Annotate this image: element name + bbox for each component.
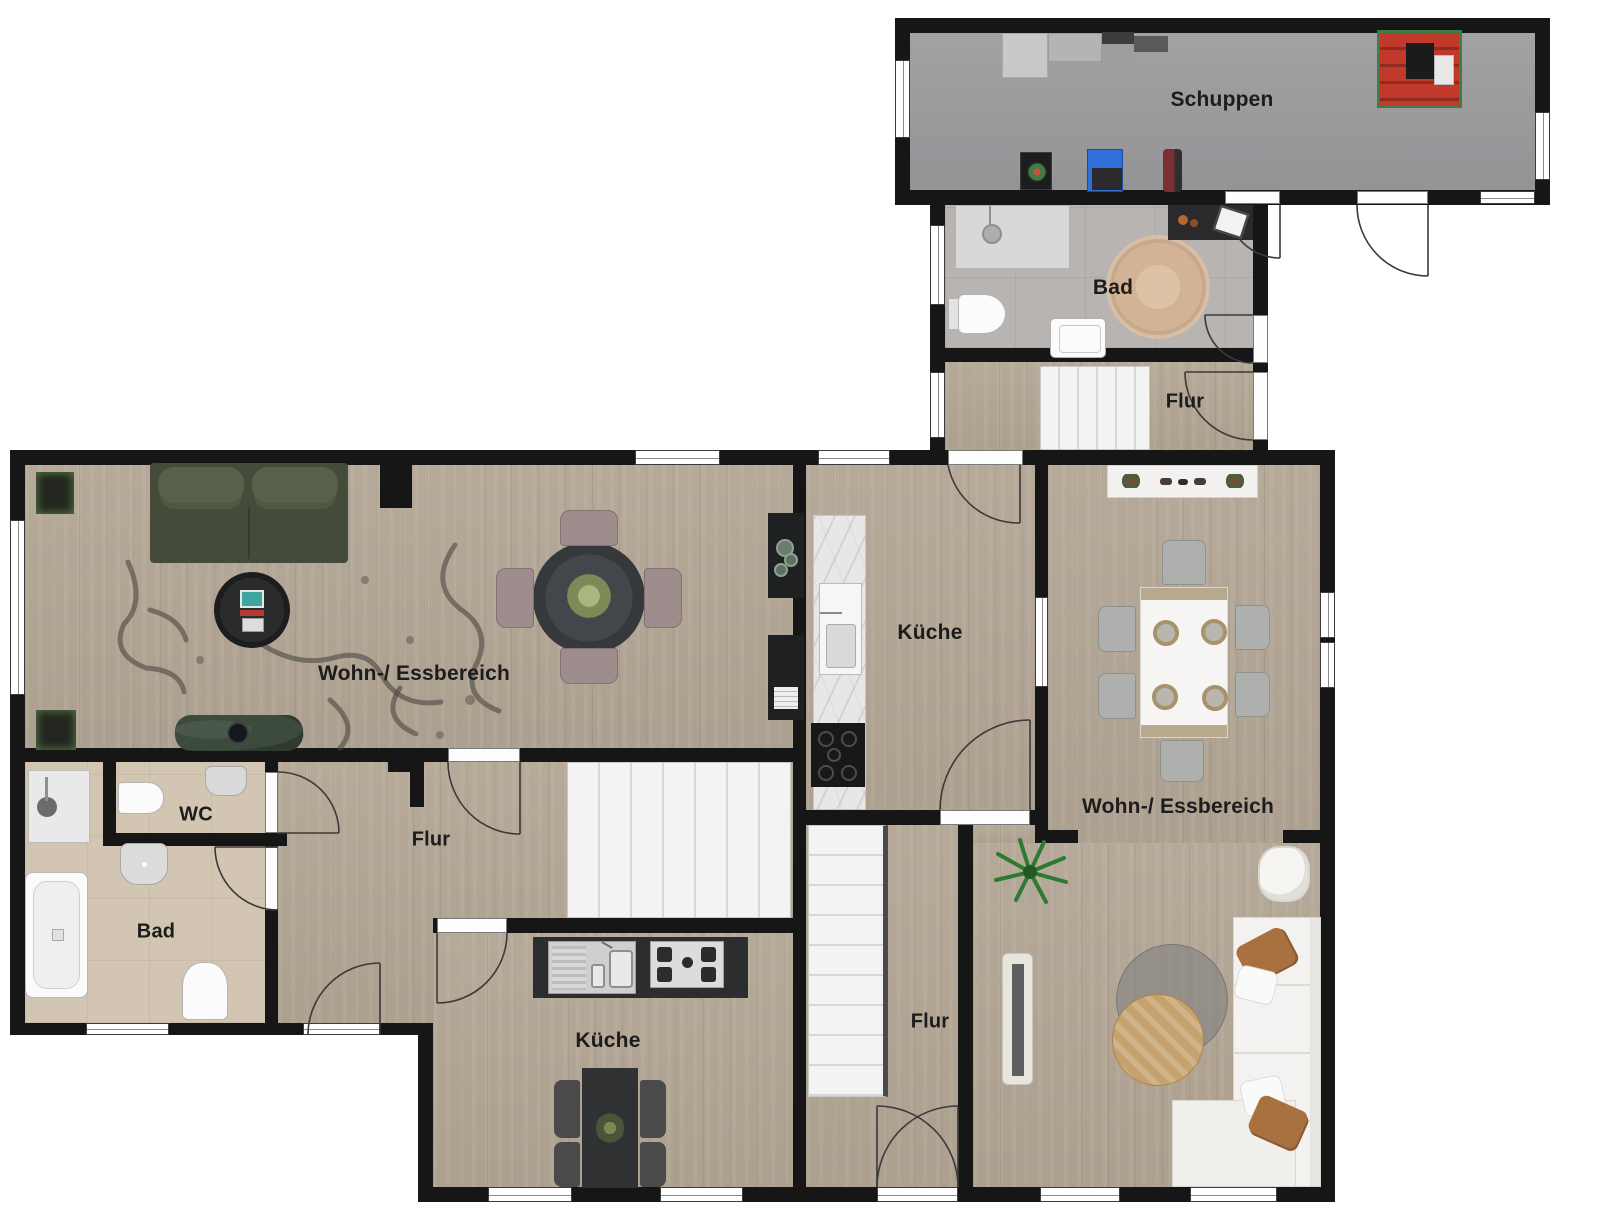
kitchen-chair-3 (640, 1080, 666, 1138)
storage-shelf-red (1377, 30, 1462, 108)
kueche-lower-wall-left (418, 1035, 433, 1202)
magazine-red (240, 610, 264, 616)
shower-arm (989, 206, 991, 226)
wohn-right-stub-right (1283, 830, 1320, 843)
window-bad-upper (930, 225, 945, 305)
workbench-shelf (1134, 36, 1168, 52)
chimney-mid (388, 748, 424, 772)
wall-art-1 (36, 472, 74, 514)
desk-accessory (1178, 215, 1188, 225)
wohn-right-stub-left (1048, 830, 1078, 843)
pouf-white (1258, 846, 1310, 902)
kitchen-sink (819, 583, 862, 675)
dining-chair-left (496, 568, 534, 628)
kitchen-chair-4 (640, 1142, 666, 1187)
room-label-bad-lower: Bad (137, 921, 175, 944)
door-gap-kueche-bottom (940, 810, 1030, 825)
window-living-left (10, 520, 25, 695)
window-kueche-top (818, 450, 890, 465)
chimney-mid-stub (410, 772, 424, 807)
window-schuppen-bottom (1480, 191, 1535, 204)
sink-unit-steel (548, 941, 636, 994)
cart-drawer (1092, 168, 1122, 190)
cabinet-plates (768, 513, 804, 598)
door-gap-flur-kueche (948, 450, 1023, 465)
hob-burner-3 (657, 967, 672, 982)
kitchen-chair-2 (554, 1142, 580, 1187)
burner-2 (841, 731, 857, 747)
coffee-table (214, 572, 290, 648)
magazine-white (242, 618, 264, 632)
room-label-flur-left: Flur (412, 829, 451, 852)
place-setting-1 (1153, 620, 1179, 646)
window-schuppen-right (1535, 112, 1550, 180)
round-rug-tan (1112, 994, 1204, 1086)
table-plant-centerpiece (567, 574, 611, 618)
burner-5 (841, 765, 857, 781)
window-living-top (635, 450, 720, 465)
door-gap-schuppen-ext (1357, 191, 1428, 204)
room-label-kueche-mid: Küche (897, 621, 962, 645)
window-wohn-right-1 (1320, 592, 1335, 638)
drainer-lines (552, 946, 586, 990)
book-stack (774, 687, 798, 709)
workbench-unit-3 (1102, 32, 1134, 72)
chair-right-2 (1235, 672, 1270, 717)
kitchen-table-dark (582, 1068, 638, 1188)
window-schuppen-left (895, 60, 910, 138)
hob-center (682, 957, 693, 968)
window-wohn-right-2 (1320, 642, 1335, 688)
sideboard-dish-2 (1178, 479, 1188, 485)
dining-chair-bottom (560, 648, 618, 684)
kitchen-counter-dark (533, 937, 748, 998)
sink-basin-large (609, 950, 633, 988)
sink-basin-inner (826, 624, 856, 668)
toilet-upper (948, 294, 1006, 334)
passage-floor (973, 825, 1035, 843)
table-trim-bottom (1141, 725, 1227, 737)
gas-hob (650, 941, 724, 988)
dartboard (1020, 152, 1052, 190)
golf-bag (1163, 149, 1182, 192)
room-label-wohn-left: Wohn-/ Essbereich (318, 662, 510, 686)
toilet-bowl (958, 294, 1006, 334)
workbench (1002, 33, 1048, 78)
chair-left-2 (1098, 673, 1136, 719)
kitchen-chair-1 (554, 1080, 580, 1138)
bathtub (25, 872, 88, 998)
cabinet-books (768, 635, 804, 720)
door-gap-bad-upper (1253, 315, 1268, 363)
chair-right-top (1162, 540, 1206, 585)
standing-mirror (1002, 953, 1033, 1085)
mirror-glass (1012, 964, 1024, 1076)
tool-cart-blue (1087, 149, 1123, 192)
sink-upper (1050, 318, 1106, 358)
room-label-wc: WC (179, 804, 213, 827)
door-gap-kueche-lower (437, 918, 507, 933)
sideboard-marble-green (175, 715, 303, 751)
burner-4 (818, 765, 834, 781)
door-gap-schuppen-bad (1225, 191, 1280, 204)
workbench-unit-2 (1048, 33, 1102, 62)
sideboard-dish-3 (1194, 478, 1206, 485)
window-flur-back-door (303, 1023, 380, 1035)
burner-3 (827, 748, 841, 762)
sofa-back-cushion-2 (252, 467, 338, 503)
toilet-bad-lower (182, 962, 228, 1020)
desk-accessory-2 (1190, 219, 1198, 227)
dartboard-rings (1027, 162, 1047, 182)
sink-dot (142, 862, 147, 867)
table-greenery (596, 1108, 624, 1148)
window-bad-bottom (86, 1023, 169, 1035)
schuppen-wall-bottom (895, 190, 1550, 205)
place-setting-2 (1201, 619, 1227, 645)
window-kueche-bottom-2 (660, 1187, 743, 1202)
chimney-top (380, 465, 412, 508)
cooktop-middle (811, 723, 865, 787)
sofa-back-edge (1310, 918, 1320, 1186)
chair-right-1 (1235, 605, 1270, 650)
window-flur-upper (930, 372, 945, 438)
room-label-flur-lower: Flur (911, 1011, 950, 1034)
notebook (1213, 205, 1250, 239)
wall-art-2 (36, 710, 76, 750)
toilet-wc (118, 782, 164, 814)
stairs-upper-flur (1040, 366, 1150, 450)
window-wohn-left-inner (1035, 597, 1048, 687)
sofa-green (150, 463, 348, 563)
sideboard-dish-1 (1160, 478, 1172, 485)
sideboard-plant-1 (1120, 474, 1142, 488)
bathtub-drain (52, 929, 64, 941)
shower-lower (28, 770, 90, 843)
sofa-seat-split (248, 507, 250, 559)
flur-lower-wall-right (958, 825, 973, 1187)
dining-table-right (1140, 587, 1228, 738)
sink-basin-small (591, 964, 605, 988)
window-kueche-bottom-1 (488, 1187, 572, 1202)
sideboard-plant-2 (1224, 474, 1246, 488)
sink-wc (205, 766, 247, 796)
room-label-schuppen: Schuppen (1170, 88, 1273, 112)
shelf-box-black (1406, 43, 1434, 79)
vanity-desk (1168, 205, 1253, 240)
hob-burner-2 (701, 947, 716, 962)
door-gap-flur-upper (1253, 372, 1268, 440)
door-gap-wc (265, 772, 278, 833)
dining-chair-top (560, 510, 618, 546)
window-wohn-bottom-1 (1040, 1187, 1120, 1202)
shelf-box-white (1434, 55, 1454, 85)
window-wohn-bottom-2 (1190, 1187, 1277, 1202)
magazine-teal (240, 590, 264, 608)
door-gap-bad-lower (265, 847, 278, 910)
shower-upper (955, 205, 1070, 269)
place-setting-4 (1202, 685, 1228, 711)
stairs-central (567, 762, 791, 918)
sofa-back-cushion-1 (158, 467, 244, 503)
chair-left-1 (1098, 606, 1136, 652)
room-label-bad-upper: Bad (1093, 276, 1133, 300)
dining-table-left (533, 542, 645, 654)
stairs-lower-flur (808, 825, 888, 1097)
shower-head-icon (982, 224, 1002, 244)
plate-green-3 (774, 563, 788, 577)
main-wall-right (1320, 450, 1335, 1202)
hob-burner-1 (657, 947, 672, 962)
decor-bowl (227, 722, 249, 744)
floor-plan: Schuppen Bad Flur Wohn-/ Essbereich Küch… (0, 0, 1616, 1208)
faucet-icon (820, 612, 842, 614)
place-setting-3 (1152, 684, 1178, 710)
hob-burner-4 (701, 967, 716, 982)
room-label-flur-upper: Flur (1166, 391, 1205, 414)
chair-right-bottom (1160, 740, 1204, 782)
room-label-wohn-right: Wohn-/ Essbereich (1082, 795, 1274, 819)
burner-1 (818, 731, 834, 747)
sideboard-white (1107, 465, 1258, 498)
entrance-door-frame (877, 1187, 958, 1202)
room-label-kueche-low: Küche (575, 1029, 640, 1053)
sink-bad-lower (120, 843, 168, 885)
faucet-icon-2 (601, 941, 612, 949)
sink-basin (1059, 325, 1101, 353)
dining-chair-right (644, 568, 682, 628)
door-gap-living-flur (448, 748, 520, 762)
table-trim-top (1141, 588, 1227, 600)
shower-arm-2 (45, 777, 48, 801)
